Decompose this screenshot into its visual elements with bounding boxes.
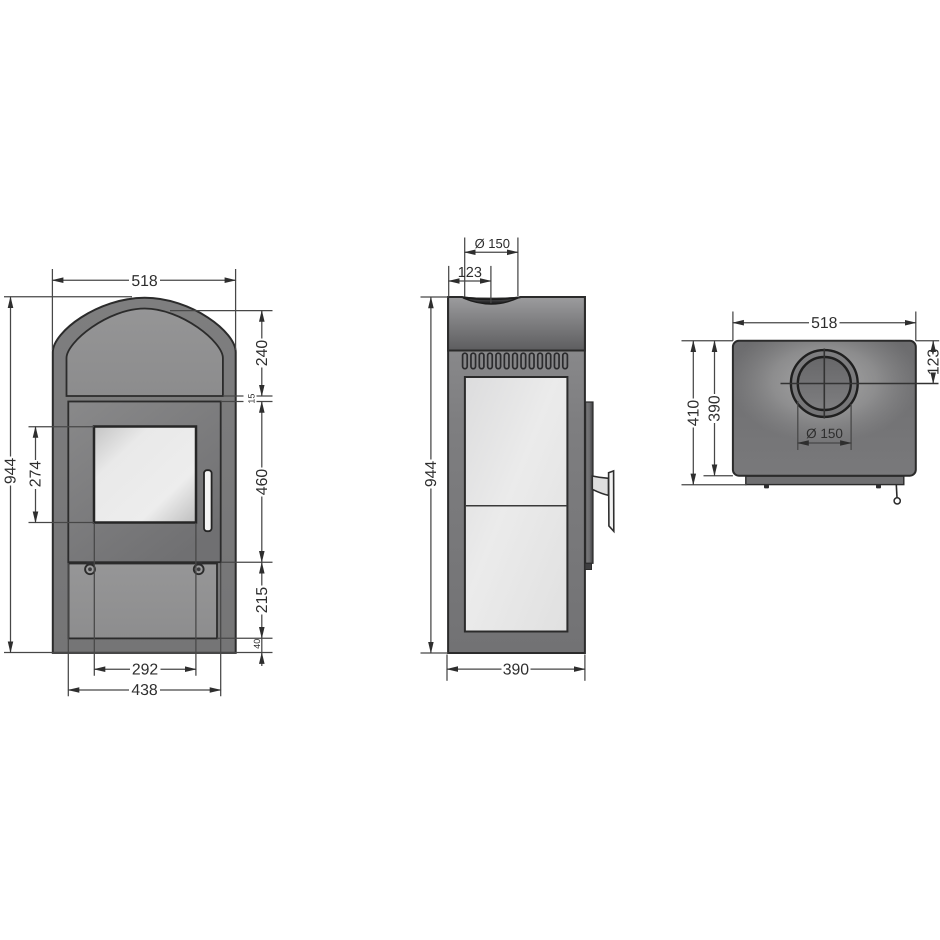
svg-text:240: 240 [254, 340, 271, 367]
svg-text:274: 274 [28, 461, 45, 488]
svg-text:123: 123 [925, 349, 940, 376]
svg-text:460: 460 [254, 469, 271, 496]
svg-text:518: 518 [811, 315, 838, 332]
svg-text:944: 944 [423, 461, 440, 488]
svg-text:438: 438 [131, 682, 158, 699]
svg-text:40: 40 [252, 639, 262, 649]
svg-text:518: 518 [131, 273, 158, 290]
svg-text:944: 944 [3, 458, 20, 485]
svg-text:Ø 150: Ø 150 [475, 236, 510, 251]
svg-text:292: 292 [132, 661, 158, 678]
svg-text:390: 390 [503, 661, 530, 678]
svg-text:123: 123 [458, 265, 482, 281]
svg-text:410: 410 [686, 400, 703, 427]
svg-text:390: 390 [707, 395, 724, 422]
svg-text:Ø 150: Ø 150 [806, 426, 843, 441]
svg-text:15: 15 [246, 394, 256, 404]
svg-text:215: 215 [254, 587, 271, 614]
